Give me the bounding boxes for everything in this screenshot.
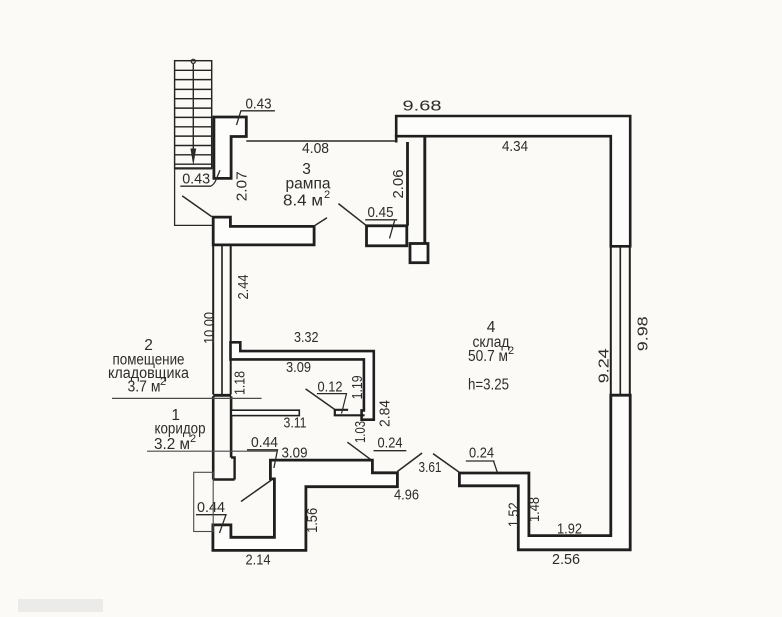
- svg-text:2.56: 2.56: [552, 551, 580, 568]
- svg-text:10.00: 10.00: [202, 312, 218, 344]
- svg-text:9.98: 9.98: [636, 316, 652, 351]
- svg-text:0.24: 0.24: [378, 434, 403, 451]
- svg-text:3.11: 3.11: [284, 415, 307, 432]
- svg-text:3.32: 3.32: [294, 329, 319, 346]
- svg-text:1.56: 1.56: [305, 508, 321, 533]
- svg-text:1.03: 1.03: [353, 421, 369, 443]
- svg-text:9.24: 9.24: [597, 348, 613, 383]
- svg-text:2: 2: [508, 345, 514, 357]
- svg-text:1.48: 1.48: [527, 497, 543, 522]
- svg-text:2.84: 2.84: [378, 400, 394, 427]
- svg-text:h=3.25: h=3.25: [468, 377, 509, 394]
- svg-text:1.92: 1.92: [557, 521, 582, 538]
- svg-text:2.14: 2.14: [246, 551, 271, 568]
- svg-text:3.09: 3.09: [282, 445, 308, 462]
- svg-text:1.52: 1.52: [507, 502, 523, 527]
- svg-text:3.7 м: 3.7 м: [128, 378, 161, 395]
- svg-text:3.09: 3.09: [286, 359, 311, 376]
- svg-text:4.34: 4.34: [502, 138, 528, 155]
- svg-text:8.4 м: 8.4 м: [283, 193, 323, 210]
- svg-text:0.44: 0.44: [197, 499, 225, 516]
- svg-text:2: 2: [190, 433, 196, 445]
- svg-text:2: 2: [160, 376, 166, 388]
- svg-text:1.18: 1.18: [233, 371, 249, 395]
- svg-text:2.07: 2.07: [235, 171, 251, 201]
- svg-text:2.06: 2.06: [391, 170, 407, 199]
- svg-text:50.7 м: 50.7 м: [468, 348, 508, 365]
- svg-text:0.43: 0.43: [182, 171, 210, 188]
- svg-text:0.43: 0.43: [246, 96, 272, 113]
- svg-text:3.2 м: 3.2 м: [154, 436, 190, 453]
- svg-text:2.44: 2.44: [236, 275, 252, 300]
- svg-text:3.61: 3.61: [419, 459, 442, 476]
- svg-text:1.19: 1.19: [350, 375, 366, 399]
- svg-text:2: 2: [324, 189, 330, 201]
- svg-text:0.24: 0.24: [469, 445, 494, 462]
- svg-text:4.08: 4.08: [302, 140, 329, 157]
- svg-text:9.68: 9.68: [403, 98, 442, 115]
- svg-text:0.44: 0.44: [251, 434, 278, 451]
- svg-text:0.45: 0.45: [368, 204, 394, 221]
- svg-text:4.96: 4.96: [394, 487, 419, 504]
